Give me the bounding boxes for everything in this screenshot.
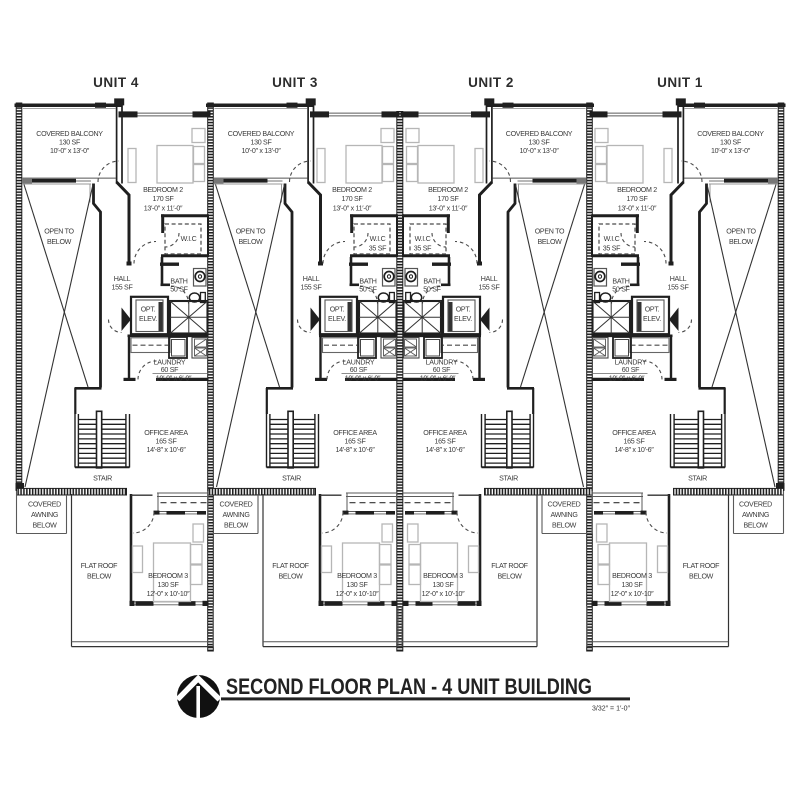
svg-text:STAIR: STAIR [93,475,112,483]
svg-text:COVERED BALCONY: COVERED BALCONY [697,130,764,138]
svg-text:BEDROOM 3: BEDROOM 3 [148,572,188,580]
svg-text:HALL: HALL [114,275,131,283]
svg-text:STAIR: STAIR [282,475,301,483]
svg-text:OPT.: OPT. [141,306,156,314]
svg-text:OPEN TO: OPEN TO [44,228,74,236]
svg-text:10′-0″ x 13′-0″: 10′-0″ x 13′-0″ [241,147,281,155]
svg-text:BELOW: BELOW [537,238,562,246]
svg-text:60 SF: 60 SF [433,366,451,374]
svg-text:10′-0″ x 6′-0″: 10′-0″ x 6′-0″ [345,375,381,383]
svg-text:BELOW: BELOW [729,238,754,246]
svg-text:130 SF: 130 SF [528,139,550,147]
svg-text:COVERED BALCONY: COVERED BALCONY [36,130,103,138]
svg-text:ELEV.: ELEV. [454,315,472,323]
svg-text:BELOW: BELOW [689,573,714,581]
svg-text:10′-0″ x 13′-0″: 10′-0″ x 13′-0″ [50,147,90,155]
svg-text:FLAT ROOF: FLAT ROOF [491,562,528,570]
svg-text:OFFICE AREA: OFFICE AREA [423,429,467,437]
svg-text:14′-8″ x 10′-6″: 14′-8″ x 10′-6″ [146,446,186,454]
svg-text:14′-8″ x 10′-6″: 14′-8″ x 10′-6″ [614,446,654,454]
svg-text:10′-0″ x 6′-0″: 10′-0″ x 6′-0″ [609,375,645,383]
svg-text:BELOW: BELOW [224,522,249,530]
svg-text:OPEN TO: OPEN TO [535,228,565,236]
svg-text:13′-0″ x 11′-0″: 13′-0″ x 11′-0″ [144,205,183,213]
svg-text:BELOW: BELOW [32,522,57,530]
svg-text:BEDROOM 3: BEDROOM 3 [423,572,463,580]
svg-text:FLAT ROOF: FLAT ROOF [81,562,118,570]
svg-text:60 SF: 60 SF [161,366,179,374]
svg-text:STAIR: STAIR [499,475,518,483]
svg-text:170 SF: 170 SF [341,195,363,203]
svg-text:3/32″ = 1′-0″: 3/32″ = 1′-0″ [592,706,631,713]
svg-text:35 SF: 35 SF [369,245,387,253]
svg-text:COVERED BALCONY: COVERED BALCONY [228,130,295,138]
svg-text:UNIT 4: UNIT 4 [93,75,139,90]
svg-text:130 SF: 130 SF [621,581,643,589]
svg-text:10′-0″ x 6′-0″: 10′-0″ x 6′-0″ [420,375,456,383]
svg-text:AWNING: AWNING [222,511,249,519]
svg-text:OPT.: OPT. [645,306,660,314]
svg-text:BEDROOM 2: BEDROOM 2 [332,186,372,194]
svg-text:OPEN TO: OPEN TO [236,228,266,236]
svg-text:130 SF: 130 SF [346,581,368,589]
svg-text:FLAT ROOF: FLAT ROOF [272,562,309,570]
svg-text:170 SF: 170 SF [437,195,459,203]
svg-text:W.I.C: W.I.C [415,235,431,243]
svg-text:UNIT 1: UNIT 1 [657,75,703,90]
svg-text:AWNING: AWNING [550,511,577,519]
svg-text:W.I.C: W.I.C [604,235,620,243]
svg-text:STAIR: STAIR [688,475,707,483]
svg-text:BEDROOM 3: BEDROOM 3 [612,572,652,580]
svg-text:12′-0″ x 10′-10″: 12′-0″ x 10′-10″ [147,590,191,598]
svg-text:170 SF: 170 SF [152,195,174,203]
svg-text:BEDROOM 2: BEDROOM 2 [143,186,183,194]
svg-text:50 SF: 50 SF [612,286,630,294]
svg-text:W.I.C: W.I.C [370,235,386,243]
svg-text:BATH: BATH [423,278,440,286]
svg-text:14′-8″ x 10′-6″: 14′-8″ x 10′-6″ [335,446,375,454]
svg-text:60 SF: 60 SF [622,366,640,374]
svg-text:ELEV.: ELEV. [643,315,661,323]
svg-text:COVERED: COVERED [739,501,772,509]
svg-text:165 SF: 165 SF [623,438,645,446]
svg-text:UNIT 3: UNIT 3 [272,75,318,90]
svg-text:50 SF: 50 SF [170,286,188,294]
svg-text:ELEV.: ELEV. [328,315,346,323]
svg-text:COVERED BALCONY: COVERED BALCONY [506,130,573,138]
svg-text:130 SF: 130 SF [59,139,81,147]
svg-text:155 SF: 155 SF [300,284,322,292]
svg-text:12′-0″ x 10′-10″: 12′-0″ x 10′-10″ [611,590,655,598]
svg-text:AWNING: AWNING [31,511,58,519]
svg-text:OPT.: OPT. [330,306,345,314]
svg-text:W.I.C: W.I.C [181,235,197,243]
svg-text:155 SF: 155 SF [111,284,133,292]
svg-text:HALL: HALL [481,275,498,283]
svg-text:BELOW: BELOW [552,522,577,530]
svg-text:SECOND FLOOR PLAN - 4 UNIT BUI: SECOND FLOOR PLAN - 4 UNIT BUILDING [226,674,592,699]
svg-text:12′-0″ x 10′-10″: 12′-0″ x 10′-10″ [422,590,466,598]
svg-text:COVERED: COVERED [220,501,253,509]
svg-text:OFFICE AREA: OFFICE AREA [144,429,188,437]
svg-text:FLAT ROOF: FLAT ROOF [683,562,720,570]
svg-text:BELOW: BELOW [47,238,72,246]
svg-text:130 SF: 130 SF [250,139,272,147]
svg-text:AWNING: AWNING [742,511,769,519]
svg-text:ELEV.: ELEV. [139,315,157,323]
svg-text:35 SF: 35 SF [414,245,432,253]
svg-text:UNIT 2: UNIT 2 [468,75,514,90]
svg-text:35 SF: 35 SF [603,245,621,253]
svg-text:155 SF: 155 SF [667,284,689,292]
svg-text:BEDROOM 3: BEDROOM 3 [337,572,377,580]
svg-text:OPT.: OPT. [456,306,471,314]
svg-text:BATH: BATH [170,278,187,286]
svg-text:165 SF: 165 SF [344,438,366,446]
svg-text:BELOW: BELOW [87,573,112,581]
svg-text:BATH: BATH [612,278,629,286]
svg-text:COVERED: COVERED [28,501,61,509]
svg-text:BEDROOM 2: BEDROOM 2 [428,186,468,194]
svg-text:13′-0″ x 11′-0″: 13′-0″ x 11′-0″ [429,205,468,213]
svg-text:165 SF: 165 SF [434,438,456,446]
svg-text:10′-0″ x 13′-0″: 10′-0″ x 13′-0″ [519,147,559,155]
svg-text:130 SF: 130 SF [432,581,454,589]
svg-text:HALL: HALL [303,275,320,283]
svg-text:BEDROOM 2: BEDROOM 2 [617,186,657,194]
svg-text:COVERED: COVERED [548,501,581,509]
svg-text:130 SF: 130 SF [720,139,742,147]
svg-text:14′-8″ x 10′-6″: 14′-8″ x 10′-6″ [425,446,465,454]
svg-text:50 SF: 50 SF [359,286,377,294]
svg-text:130 SF: 130 SF [157,581,179,589]
svg-text:60 SF: 60 SF [350,366,368,374]
svg-text:13′-0″ x 11′-0″: 13′-0″ x 11′-0″ [333,205,372,213]
svg-text:10′-0″ x 13′-0″: 10′-0″ x 13′-0″ [711,147,751,155]
svg-text:BELOW: BELOW [238,238,263,246]
svg-text:155 SF: 155 SF [478,284,500,292]
svg-text:HALL: HALL [670,275,687,283]
svg-text:13′-0″ x 11′-0″: 13′-0″ x 11′-0″ [618,205,657,213]
svg-text:BELOW: BELOW [497,573,522,581]
svg-text:OFFICE AREA: OFFICE AREA [612,429,656,437]
svg-text:165 SF: 165 SF [155,438,177,446]
svg-text:BATH: BATH [359,278,376,286]
svg-text:10′-0″ x 6′-0″: 10′-0″ x 6′-0″ [156,375,192,383]
svg-text:170 SF: 170 SF [626,195,648,203]
svg-text:12′-0″ x 10′-10″: 12′-0″ x 10′-10″ [336,590,380,598]
svg-text:OFFICE AREA: OFFICE AREA [333,429,377,437]
svg-text:OPEN TO: OPEN TO [726,228,756,236]
svg-text:50 SF: 50 SF [423,286,441,294]
svg-text:BELOW: BELOW [743,522,768,530]
svg-text:BELOW: BELOW [278,573,303,581]
